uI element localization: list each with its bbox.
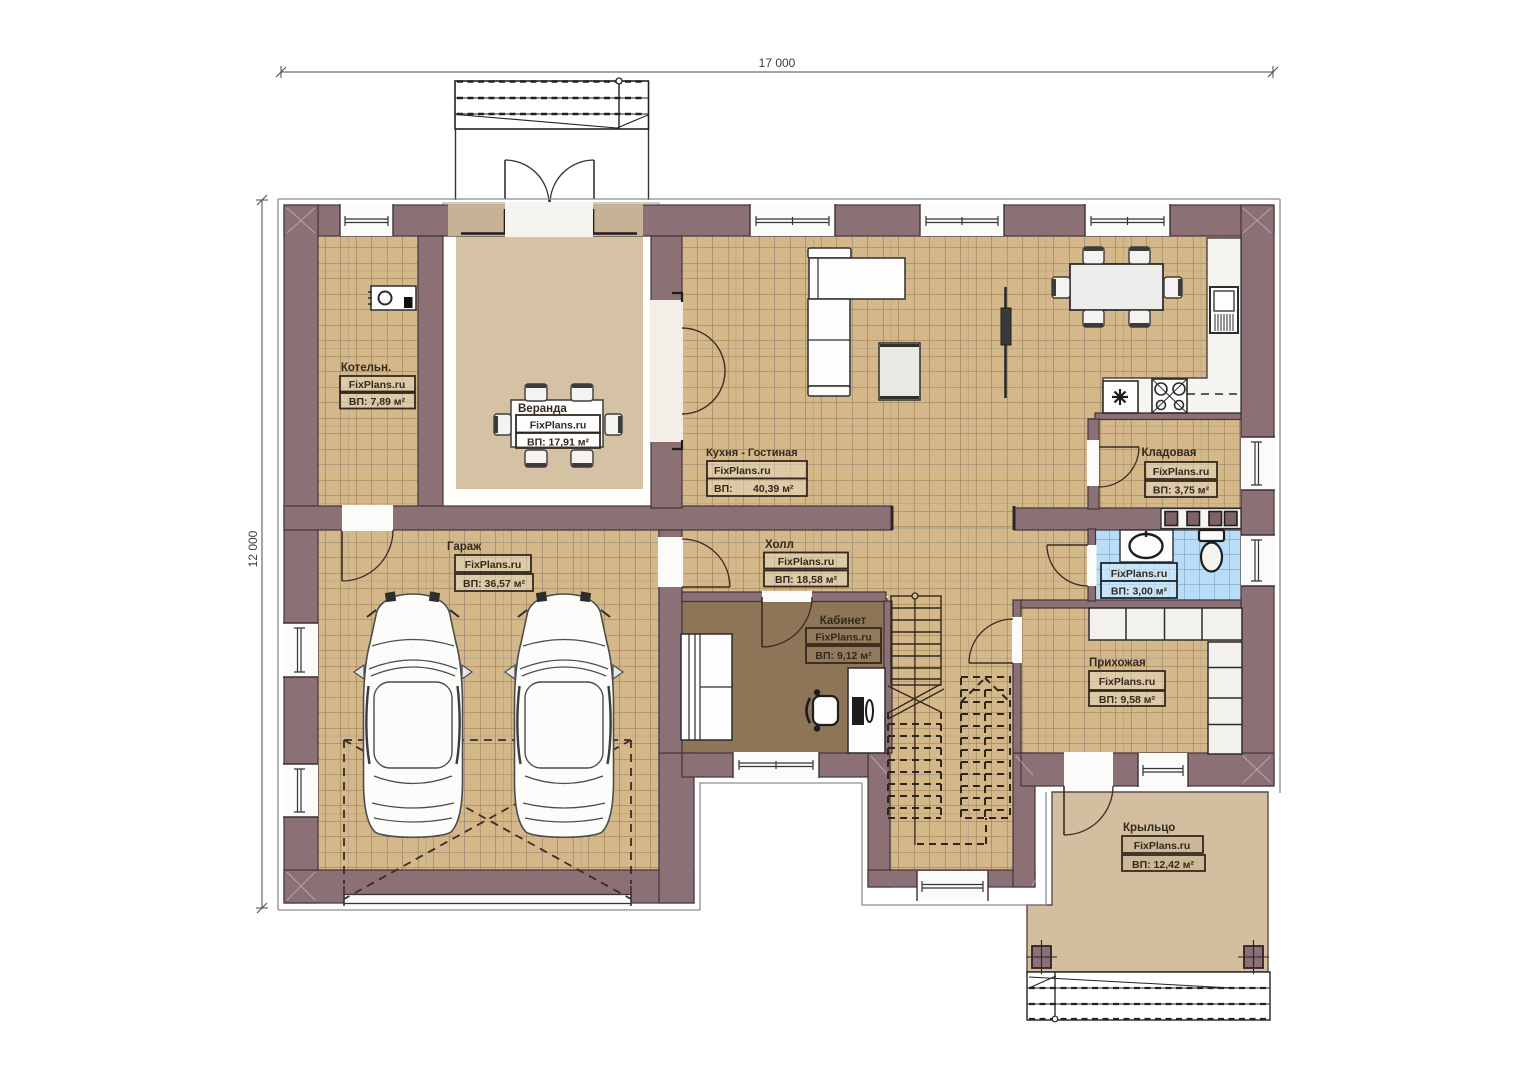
svg-text:Крыльцо: Крыльцо xyxy=(1123,822,1175,834)
svg-text:ВП: 3,00 м²: ВП: 3,00 м² xyxy=(1111,586,1168,598)
svg-text:FixPlans.ru: FixPlans.ru xyxy=(530,420,587,432)
svg-text:Прихожая: Прихожая xyxy=(1089,657,1146,669)
svg-text:40,39 м²: 40,39 м² xyxy=(753,483,794,495)
svg-text:Котельн.: Котельн. xyxy=(341,362,391,374)
svg-text:FixPlans.ru: FixPlans.ru xyxy=(778,556,835,568)
svg-text:FixPlans.ru: FixPlans.ru xyxy=(1134,840,1191,852)
svg-text:Веранда: Веранда xyxy=(518,403,567,415)
svg-text:FixPlans.ru: FixPlans.ru xyxy=(465,559,522,571)
svg-text:Кабинет: Кабинет xyxy=(820,615,867,627)
svg-text:Гараж: Гараж xyxy=(447,541,482,553)
svg-text:FixPlans.ru: FixPlans.ru xyxy=(1153,466,1210,478)
svg-text:FixPlans.ru: FixPlans.ru xyxy=(1099,676,1156,688)
svg-text:FixPlans.ru: FixPlans.ru xyxy=(349,379,406,391)
svg-text:FixPlans.ru: FixPlans.ru xyxy=(1111,568,1168,580)
svg-text:12 000: 12 000 xyxy=(246,530,260,567)
svg-text:FixPlans.ru: FixPlans.ru xyxy=(714,465,771,477)
svg-text:ВП: 7,89 м²: ВП: 7,89 м² xyxy=(349,396,406,408)
svg-text:ВП:: ВП: xyxy=(714,483,733,495)
svg-text:FixPlans.ru: FixPlans.ru xyxy=(815,632,872,644)
svg-text:ВП: 17,91 м²: ВП: 17,91 м² xyxy=(527,437,590,449)
svg-text:ВП: 9,12 м²: ВП: 9,12 м² xyxy=(815,650,872,662)
svg-text:ВП: 36,57 м²: ВП: 36,57 м² xyxy=(463,578,526,590)
svg-text:ВП: 12,42 м²: ВП: 12,42 м² xyxy=(1132,859,1195,871)
svg-text:Кухня - Гостиная: Кухня - Гостиная xyxy=(706,447,798,459)
svg-text:ВП: 18,58 м²: ВП: 18,58 м² xyxy=(775,574,838,586)
svg-text:ВП: 3,75 м²: ВП: 3,75 м² xyxy=(1153,485,1210,497)
svg-text:Холл: Холл xyxy=(765,539,794,551)
svg-text:ВП: 9,58 м²: ВП: 9,58 м² xyxy=(1099,694,1156,706)
svg-text:Кладовая: Кладовая xyxy=(1141,447,1196,459)
svg-text:17 000: 17 000 xyxy=(759,56,796,70)
